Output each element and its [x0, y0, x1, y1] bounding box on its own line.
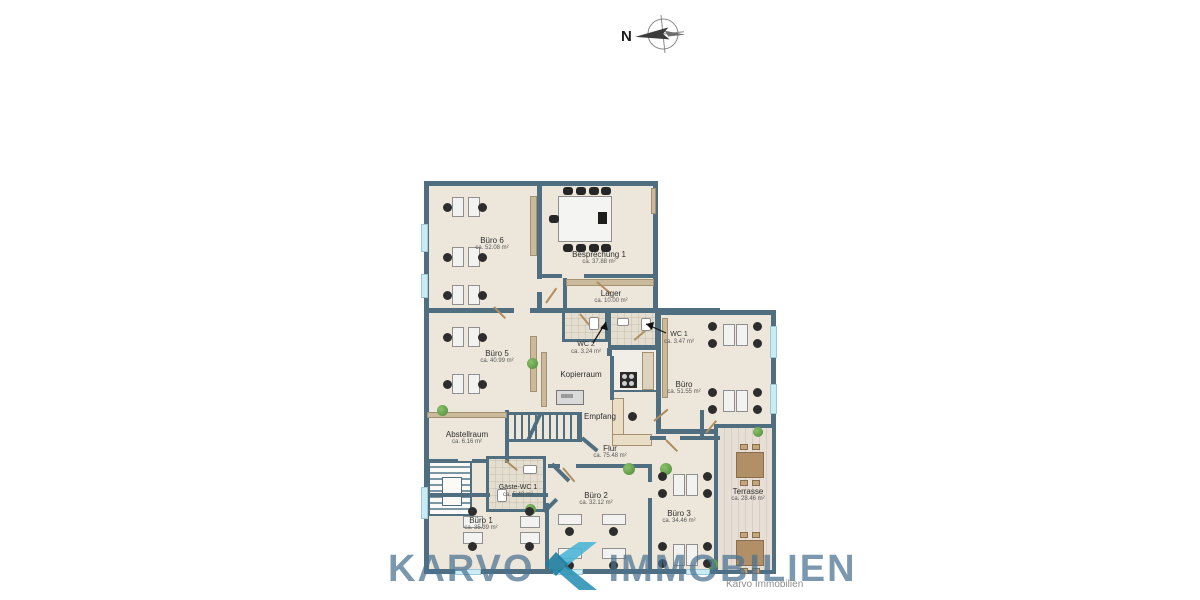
wall [576, 464, 652, 468]
stair-well [442, 477, 462, 506]
room-label-buero1: Büro 1 ca. 35.39 m² [464, 516, 497, 532]
wall [472, 459, 488, 463]
wall [540, 274, 562, 278]
wall [648, 464, 652, 482]
image-caption: Karvo Immobilien [726, 579, 803, 590]
desk-icon [736, 390, 748, 412]
office-chair-icon [443, 380, 452, 389]
plant-icon [437, 405, 448, 416]
stove-icon [620, 372, 637, 388]
office-chair-icon [753, 388, 762, 397]
desk-cluster [443, 323, 487, 351]
window [770, 384, 777, 414]
desk-icon [673, 474, 685, 496]
wall [650, 436, 666, 440]
office-chair-icon [468, 507, 477, 516]
desk-single [558, 514, 582, 538]
compass-rose: N [615, 10, 693, 58]
office-chair-icon [443, 333, 452, 342]
office-chair-icon [478, 291, 487, 300]
copier-machine [556, 390, 584, 405]
desk-cluster [443, 370, 487, 398]
desk-icon [520, 516, 540, 528]
window [421, 487, 428, 519]
desk-single [602, 514, 626, 538]
presentation-screen-icon [598, 212, 607, 224]
desk-icon [452, 197, 464, 217]
desk-icon [452, 285, 464, 305]
room-label-empfang: Empfang [584, 412, 616, 421]
office-chair-icon [443, 203, 452, 212]
room-label-abstellraum: Abstellraum ca. 6.16 m² [446, 430, 488, 446]
desk-icon [558, 514, 582, 525]
plant-icon [753, 427, 763, 437]
room-label-buero3: Büro 3 ca. 34.46 m² [662, 509, 695, 525]
desk-icon [736, 324, 748, 346]
office-chair-icon [703, 472, 712, 481]
office-chair-icon [658, 489, 667, 498]
office-chair-icon [708, 339, 717, 348]
terrace-chair [740, 532, 748, 538]
office-chair-icon [478, 380, 487, 389]
desk-icon [723, 390, 735, 412]
office-chair-icon [708, 322, 717, 331]
office-chair-icon [753, 322, 762, 331]
room-label-wc1: WC 1 ca. 3.47 m² [664, 330, 694, 346]
office-chair-icon [753, 405, 762, 414]
room-label-flur: Flur ca. 75.48 m² [593, 444, 626, 460]
wall [610, 356, 614, 400]
conference-chair-icon [563, 187, 573, 195]
compass-north-letter: N [621, 28, 632, 45]
conference-chair-icon [601, 187, 611, 195]
desk-cluster [443, 193, 487, 221]
terrace-chair [752, 444, 760, 450]
room-label-kopierraum: Kopierraum [560, 370, 601, 379]
office-chair-icon [753, 339, 762, 348]
room-label-buero: Büro ca. 51.55 m² [667, 380, 700, 396]
office-chair-icon [565, 527, 574, 536]
office-chair-icon [478, 203, 487, 212]
wall [537, 292, 542, 313]
window [770, 326, 777, 358]
wall [700, 410, 704, 436]
sink-icon [523, 465, 537, 474]
room-label-terrasse: Terrasse ca. 28.46 m² [731, 487, 764, 503]
window [421, 224, 428, 252]
radiator [651, 188, 656, 214]
wall [424, 493, 490, 497]
plant-icon [623, 463, 635, 475]
terrace-chair [752, 532, 760, 538]
office-chair-icon [658, 472, 667, 481]
wall [680, 436, 720, 440]
desk-cluster-quad [706, 386, 764, 416]
wall [537, 181, 542, 279]
wall [424, 459, 458, 463]
desk-cluster [443, 281, 487, 309]
window [421, 274, 428, 298]
conference-chair-icon [576, 187, 586, 195]
office-chair-icon [478, 253, 487, 262]
desk-icon [723, 324, 735, 346]
office-chair-icon [703, 489, 712, 498]
radiator [541, 352, 547, 407]
office-chair-icon [628, 412, 637, 421]
terrace-table [736, 452, 764, 478]
wall-opening [514, 306, 530, 314]
kitchen-counter [642, 352, 654, 390]
wall [584, 274, 658, 278]
conference-chair-icon [589, 187, 599, 195]
floorplan-canvas: N [0, 0, 1200, 600]
room-label-lager: Lager ca. 10.00 m² [594, 289, 627, 305]
office-chair-icon [708, 405, 717, 414]
room-label-buero5: Büro 5 ca. 40.99 m² [480, 349, 513, 365]
office-chair-icon [478, 333, 487, 342]
plant-icon [527, 358, 538, 369]
room-label-buero6: Büro 6 ca. 52.08 m² [475, 236, 508, 252]
conference-chair-icon [549, 215, 559, 223]
office-chair-icon [443, 291, 452, 300]
desk-icon [686, 474, 698, 496]
radiator [566, 279, 654, 286]
room-label-besprechung1: Besprechung 1 ca. 37.88 m² [572, 250, 626, 266]
room-label-wc2: WC 2 ca. 3.24 m² [571, 340, 601, 356]
room-label-buero2: Büro 2 ca. 32.12 m² [579, 491, 612, 507]
karvo-logo-icon [545, 540, 601, 592]
wall-opening [598, 429, 612, 435]
desk-cluster-quad [656, 470, 714, 500]
kitchenette [610, 348, 658, 392]
terrace-chair [740, 480, 748, 486]
desk-icon [452, 327, 464, 347]
room-label-gaeste-wc1: Gäste-WC 1 ca. 5.43 m² [499, 483, 538, 499]
office-chair-icon [609, 527, 618, 536]
desk-icon [602, 514, 626, 525]
office-chair-icon [525, 507, 534, 516]
desk-icon [452, 374, 464, 394]
desk-cluster-quad [706, 320, 764, 350]
terrace-chair [752, 480, 760, 486]
office-chair-icon [443, 253, 452, 262]
terrace-chair [740, 444, 748, 450]
office-chair-icon [708, 388, 717, 397]
radiator [530, 196, 537, 256]
desk-icon [452, 247, 464, 267]
main-staircase [506, 412, 582, 442]
watermark-word-karvo: KARVO [388, 550, 535, 588]
